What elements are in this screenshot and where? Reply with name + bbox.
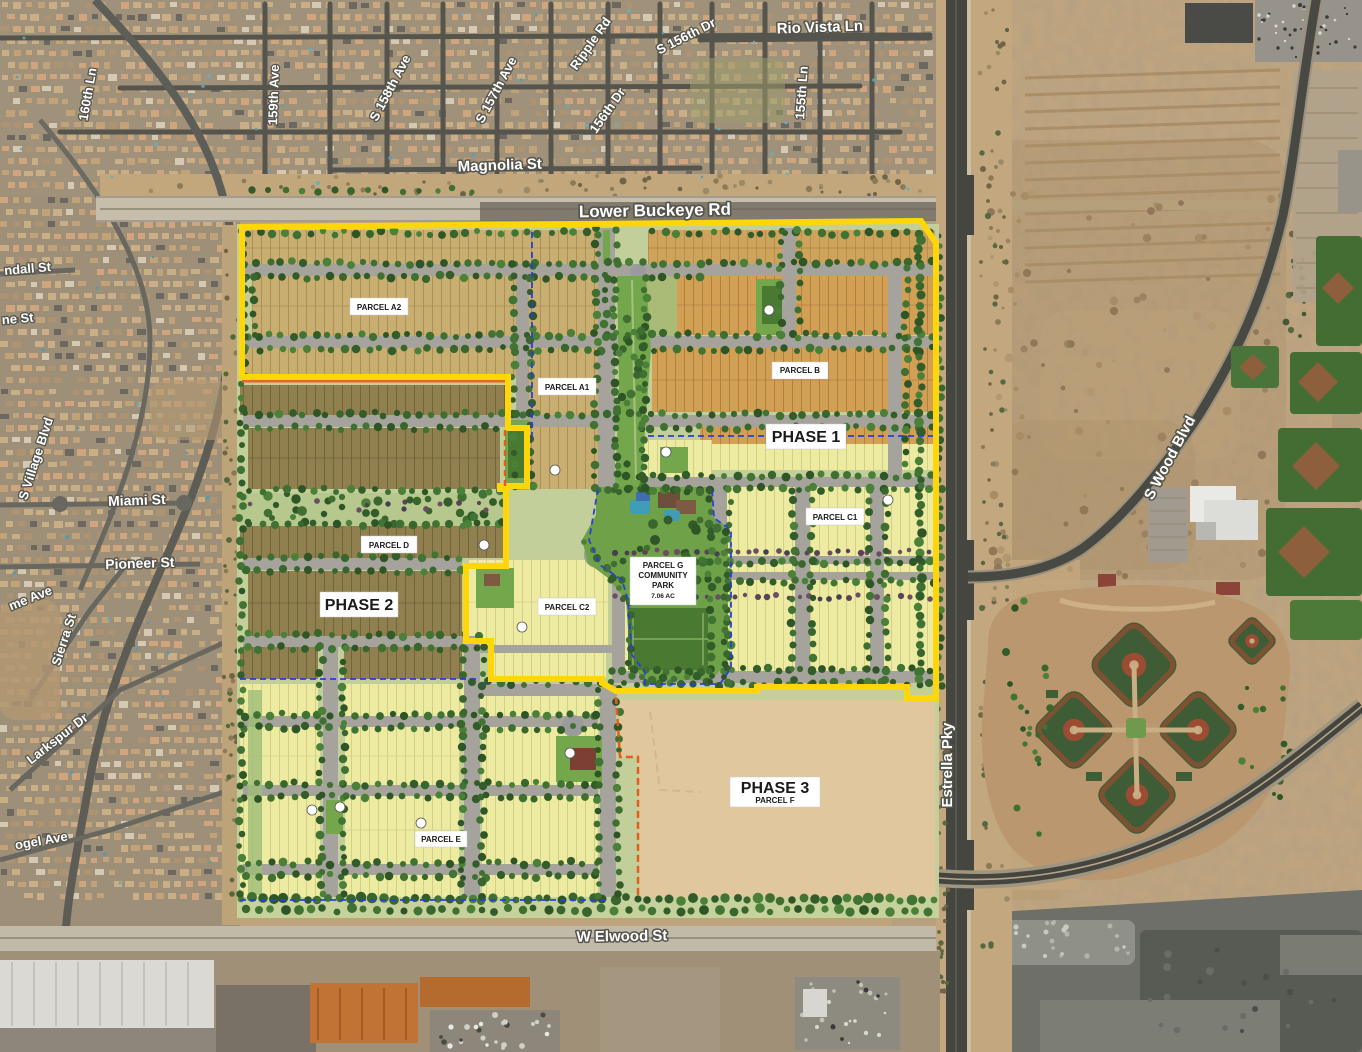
svg-text:ne St: ne St bbox=[1, 310, 35, 328]
svg-text:PARCEL C1: PARCEL C1 bbox=[813, 513, 858, 522]
svg-text:Magnolia St: Magnolia St bbox=[457, 156, 542, 176]
svg-text:159th Ave: 159th Ave bbox=[265, 64, 282, 125]
svg-text:Lower Buckeye Rd: Lower Buckeye Rd bbox=[579, 200, 731, 222]
svg-text:PARCEL C2: PARCEL C2 bbox=[545, 603, 590, 612]
svg-text:PARCEL B: PARCEL B bbox=[780, 366, 820, 375]
svg-text:PHASE 1: PHASE 1 bbox=[772, 429, 841, 446]
svg-text:Pioneer St: Pioneer St bbox=[105, 554, 175, 572]
svg-text:W Elwood St: W Elwood St bbox=[576, 927, 667, 946]
svg-text:PARCEL F: PARCEL F bbox=[755, 796, 794, 805]
svg-text:PARCEL E: PARCEL E bbox=[421, 835, 461, 844]
svg-text:7.06 AC: 7.06 AC bbox=[651, 593, 675, 600]
svg-text:PARCEL A1: PARCEL A1 bbox=[545, 383, 590, 392]
svg-text:PARCEL D: PARCEL D bbox=[369, 541, 409, 550]
svg-text:PARCEL A2: PARCEL A2 bbox=[357, 303, 402, 312]
svg-text:Estrella Pky: Estrella Pky bbox=[939, 722, 956, 808]
svg-text:COMMUNITY: COMMUNITY bbox=[638, 571, 688, 580]
svg-text:PHASE 2: PHASE 2 bbox=[325, 597, 394, 614]
svg-text:PARK: PARK bbox=[652, 581, 674, 590]
svg-text:PHASE 3: PHASE 3 bbox=[741, 780, 810, 797]
svg-text:Miami St: Miami St bbox=[108, 491, 166, 509]
svg-text:PARCEL G: PARCEL G bbox=[643, 561, 684, 570]
svg-text:Rio Vista Ln: Rio Vista Ln bbox=[776, 18, 863, 38]
